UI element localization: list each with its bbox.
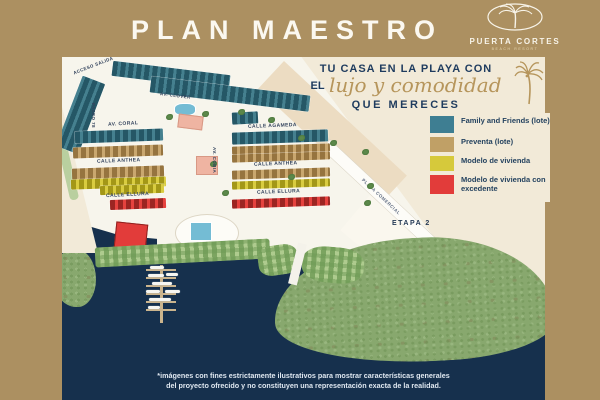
legend-swatch-yellow — [430, 156, 454, 171]
legend-item-modelo-excedente: Modelo de vivienda con excedente — [430, 175, 550, 194]
dock-finger — [146, 277, 176, 279]
disclaimer-line2: del proyecto ofrecido y no constituyen u… — [62, 381, 545, 391]
header-band: PLAN MAESTRO PUERTA CORTES BEACH RESORT — [0, 0, 600, 57]
boat — [165, 290, 180, 293]
dock-finger — [146, 285, 176, 287]
legend-item-modelo: Modelo de vivienda — [430, 156, 550, 171]
hero-line2-prefix: EL — [310, 80, 324, 92]
disclaimer-line1: *imágenes con fines estrictamente ilustr… — [62, 371, 545, 381]
palm-oval-icon — [486, 3, 544, 31]
disclaimer: *imágenes con fines estrictamente ilustr… — [62, 371, 545, 390]
dock-finger — [146, 301, 176, 303]
legend-label: Modelo de vivienda con excedente — [461, 175, 550, 193]
legend-label: Family and Friends (lote) — [461, 116, 550, 126]
legend-item-preventa: Preventa (lote) — [430, 137, 550, 152]
pool-main — [190, 222, 212, 241]
boat — [148, 306, 160, 309]
boat — [166, 273, 178, 276]
boat — [149, 298, 171, 301]
street-label-av-cobia: AV. COBIA — [212, 147, 217, 173]
legend-swatch-red — [430, 175, 454, 194]
clubhouse-north — [177, 114, 204, 131]
hero-line3: QUE MERECES — [296, 99, 516, 111]
legend-label: Preventa (lote) — [461, 137, 513, 147]
boat — [150, 266, 164, 269]
dock-finger — [146, 309, 176, 311]
street-label-paseo: PASEO 78 — [91, 103, 96, 128]
lots-red-west — [110, 198, 166, 210]
dock-finger — [146, 269, 176, 271]
hero-text: TU CASA EN LA PLAYA CON EL lujo y comodi… — [296, 63, 516, 111]
brand-name: PUERTA CORTES — [452, 37, 578, 46]
brand-logo: PUERTA CORTES BEACH RESORT — [452, 3, 578, 51]
hero-line2: EL lujo y comodidad — [296, 75, 516, 98]
page-title: PLAN MAESTRO — [92, 15, 482, 46]
dock-finger — [146, 293, 176, 295]
legend-item-family-friends: Family and Friends (lote) — [430, 116, 550, 133]
boat — [148, 274, 164, 277]
palm-tree-icon — [514, 60, 544, 106]
etapa2-label: ETAPA 2 — [392, 220, 431, 227]
hero-line2-script: lujo y comodidad — [329, 73, 502, 97]
page: { "header": { "title": "PLAN MAESTRO", "… — [0, 0, 600, 400]
legend: Family and Friends (lote) Preventa (lote… — [428, 113, 550, 202]
legend-swatch-tan — [430, 137, 454, 152]
boat — [146, 290, 160, 293]
brand-tagline: BEACH RESORT — [452, 47, 578, 51]
legend-label: Modelo de vivienda — [461, 156, 530, 166]
boat — [152, 282, 172, 285]
legend-swatch-teal — [430, 116, 454, 133]
